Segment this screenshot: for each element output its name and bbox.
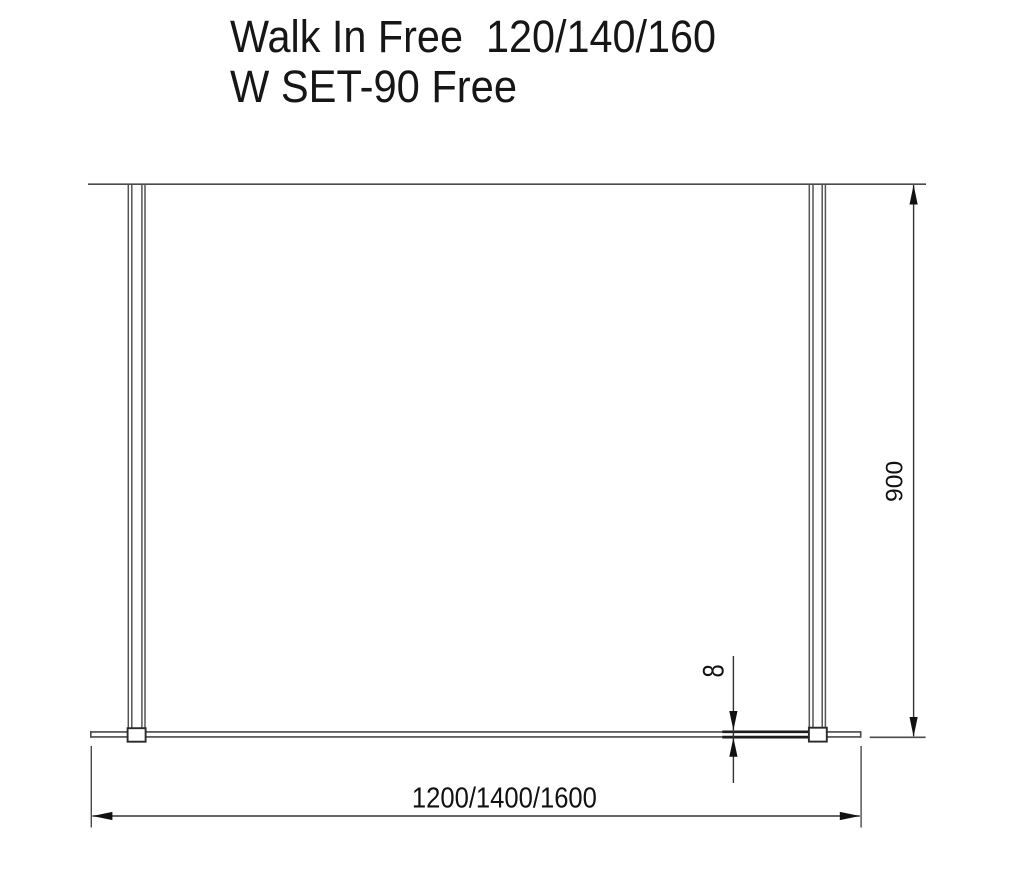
svg-text:8: 8 <box>697 664 730 677</box>
svg-text:Walk In Free 120/140/160: Walk In Free 120/140/160 <box>230 11 716 62</box>
svg-text:1200/1400/1600: 1200/1400/1600 <box>412 782 597 814</box>
svg-text:W SET-90 Free: W SET-90 Free <box>230 61 517 112</box>
svg-text:900: 900 <box>881 461 908 502</box>
